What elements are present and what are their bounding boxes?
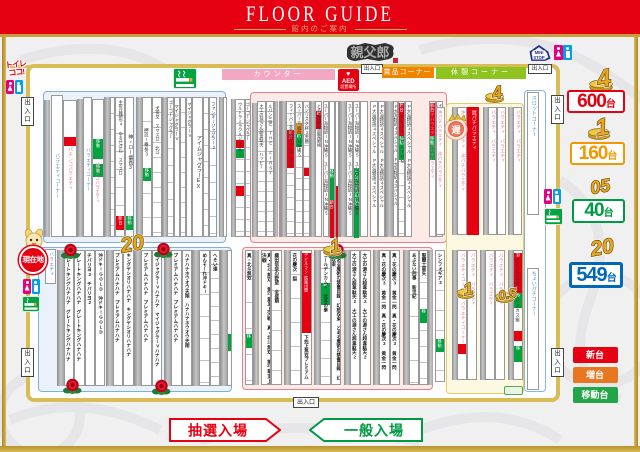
svg-text:親父郎: 親父郎 [350, 45, 389, 60]
svg-text:抽選入場: 抽選入場 [188, 423, 248, 439]
svg-text:0.5: 0.5 [497, 285, 518, 303]
svg-text:1: 1 [328, 235, 341, 256]
svg-text:STOP: STOP [533, 55, 545, 60]
svg-text:20: 20 [588, 234, 616, 260]
svg-text:遅: 遅 [451, 125, 460, 135]
svg-text:05: 05 [589, 174, 613, 197]
svg-text:一般入場: 一般入場 [344, 423, 404, 439]
svg-text:1: 1 [462, 279, 475, 299]
svg-text:20: 20 [118, 231, 146, 257]
